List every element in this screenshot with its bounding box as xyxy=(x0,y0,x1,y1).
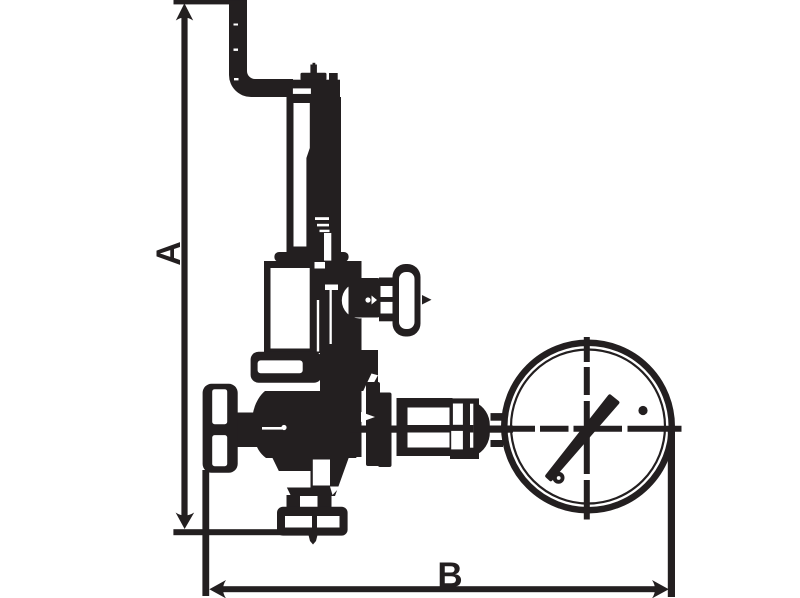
svg-text:A: A xyxy=(150,241,188,266)
svg-text:B: B xyxy=(437,556,462,595)
